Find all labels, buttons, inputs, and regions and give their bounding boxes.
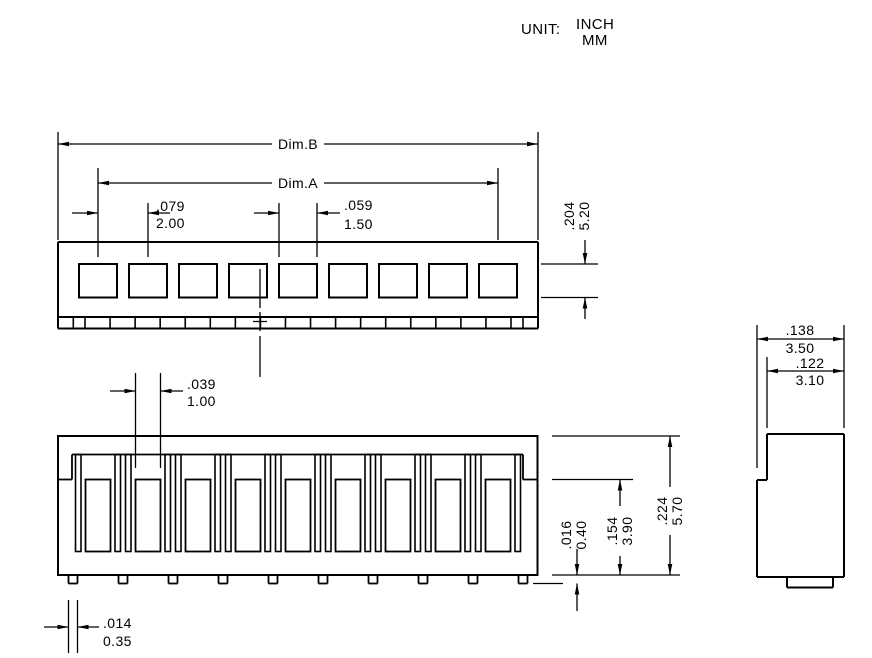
pin-width-dim-mm: 0.35 <box>103 633 132 649</box>
contact-slot-narrow <box>426 455 432 552</box>
drawing-svg: UNIT: INCH MM Dim.B Dim.A .079 2.00 .059… <box>0 0 872 658</box>
hole-width-dim-mm: 1.50 <box>344 216 373 232</box>
contact-slot-narrow <box>165 455 171 552</box>
top-view-strip-dividers <box>73 317 523 329</box>
contact-slot-narrow <box>315 455 321 552</box>
arrowhead-icon <box>618 564 623 575</box>
arrowhead-icon <box>668 564 673 575</box>
side-depth-dim-mm: 3.50 <box>786 340 815 356</box>
arrowhead-icon <box>668 436 673 447</box>
slot-width-dim-mm: 1.00 <box>187 393 216 409</box>
pin-hole <box>129 264 167 298</box>
contact-slot-wide <box>436 480 461 552</box>
pin-width-dim-inch: .014 <box>103 615 132 631</box>
unit-label: UNIT: <box>521 21 561 38</box>
contact-slot-wide <box>386 480 411 552</box>
contact-slot-narrow <box>326 455 332 552</box>
arrowhead-icon <box>833 369 844 374</box>
arrowhead-icon <box>767 369 778 374</box>
arrowhead-icon <box>161 389 172 394</box>
arrowhead-icon <box>58 142 69 147</box>
contact-slot-wide <box>486 480 511 552</box>
pin-hole <box>79 264 117 298</box>
contact-slot-narrow <box>515 455 521 552</box>
front-view-tabs <box>69 575 528 584</box>
contact-slot-wide <box>286 480 311 552</box>
side-view <box>757 434 844 588</box>
contact-slot-narrow <box>115 455 121 552</box>
housing-height-dim-inch: .224 <box>654 497 670 526</box>
dim-a-label: Dim.A <box>278 175 318 191</box>
contact-slot-narrow <box>126 455 132 552</box>
arrowhead-icon <box>575 584 580 595</box>
arrowhead-icon <box>317 211 328 216</box>
drawing-labels: UNIT: INCH MM Dim.B Dim.A .079 2.00 .059… <box>103 16 824 649</box>
dim-hole-width <box>254 203 340 257</box>
hole-width-dim-inch: .059 <box>344 197 373 213</box>
contact-slot-narrow <box>415 455 421 552</box>
arrowhead-icon <box>575 564 580 575</box>
unit-mm-label: MM <box>582 32 608 49</box>
housing-height-dim-mm: 5.70 <box>669 497 685 526</box>
arrowhead-icon <box>58 625 69 630</box>
side-inner-depth-dim-mm: 3.10 <box>796 372 825 388</box>
arrowhead-icon <box>618 480 623 491</box>
pin-hole <box>229 264 267 298</box>
pitch-dim-mm: 2.00 <box>156 215 185 231</box>
pin-protrusion-dim-mm: 0.40 <box>573 521 589 550</box>
arrowhead-icon <box>78 625 89 630</box>
cavity-height-dim-inch: .154 <box>604 517 620 546</box>
unit-inch-label: INCH <box>576 16 614 33</box>
cavity-height-dim-mm: 3.90 <box>619 517 635 546</box>
pin-hole <box>379 264 417 298</box>
arrowhead-icon <box>833 337 844 342</box>
contact-slot-narrow <box>265 455 271 552</box>
pin-hole <box>179 264 217 298</box>
contact-slot-wide <box>136 480 161 552</box>
contact-slot-narrow <box>176 455 182 552</box>
pin-hole <box>279 264 317 298</box>
top-view-holes <box>79 264 517 298</box>
connector-engineering-drawing: UNIT: INCH MM Dim.B Dim.A .079 2.00 .059… <box>0 0 872 658</box>
arrowhead-icon <box>487 181 498 186</box>
housing-depth-dim-mm: 5.20 <box>576 202 592 231</box>
front-view-slots <box>76 455 521 552</box>
contact-slot-wide <box>336 480 361 552</box>
dim-pin-protrusion <box>575 549 580 611</box>
housing-depth-dim-inch: .204 <box>561 202 577 231</box>
contact-slot-wide <box>86 480 111 552</box>
contact-slot-narrow <box>276 455 282 552</box>
pin-hole <box>329 264 367 298</box>
dim-housing-depth <box>541 240 598 319</box>
contact-slot-narrow <box>465 455 471 552</box>
contact-slot-wide <box>186 480 211 552</box>
arrowhead-icon <box>125 389 136 394</box>
contact-slot-wide <box>236 480 261 552</box>
side-inner-depth-dim-inch: .122 <box>796 355 825 371</box>
arrowhead-icon <box>527 142 538 147</box>
contact-slot-narrow <box>476 455 482 552</box>
arrowhead-icon <box>87 211 98 216</box>
dim-b-label: Dim.B <box>278 136 318 152</box>
contact-slot-narrow <box>376 455 382 552</box>
dim-pin-width <box>44 600 99 653</box>
arrowhead-icon <box>757 337 768 342</box>
contact-slot-narrow <box>365 455 371 552</box>
contact-slot-narrow <box>215 455 221 552</box>
contact-slot-narrow <box>76 455 82 552</box>
slot-width-dim-inch: .039 <box>187 376 216 392</box>
arrowhead-icon <box>268 211 279 216</box>
section-line <box>253 269 267 377</box>
arrowhead-icon <box>98 181 109 186</box>
arrowhead-icon <box>583 298 588 309</box>
side-depth-dim-inch: .138 <box>786 322 815 338</box>
pitch-dim-inch: .079 <box>156 198 185 214</box>
pin-protrusion-dim-inch: .016 <box>558 521 574 550</box>
pin-hole <box>429 264 467 298</box>
arrowhead-icon <box>583 253 588 264</box>
contact-slot-narrow <box>226 455 232 552</box>
pin-hole <box>479 264 517 298</box>
